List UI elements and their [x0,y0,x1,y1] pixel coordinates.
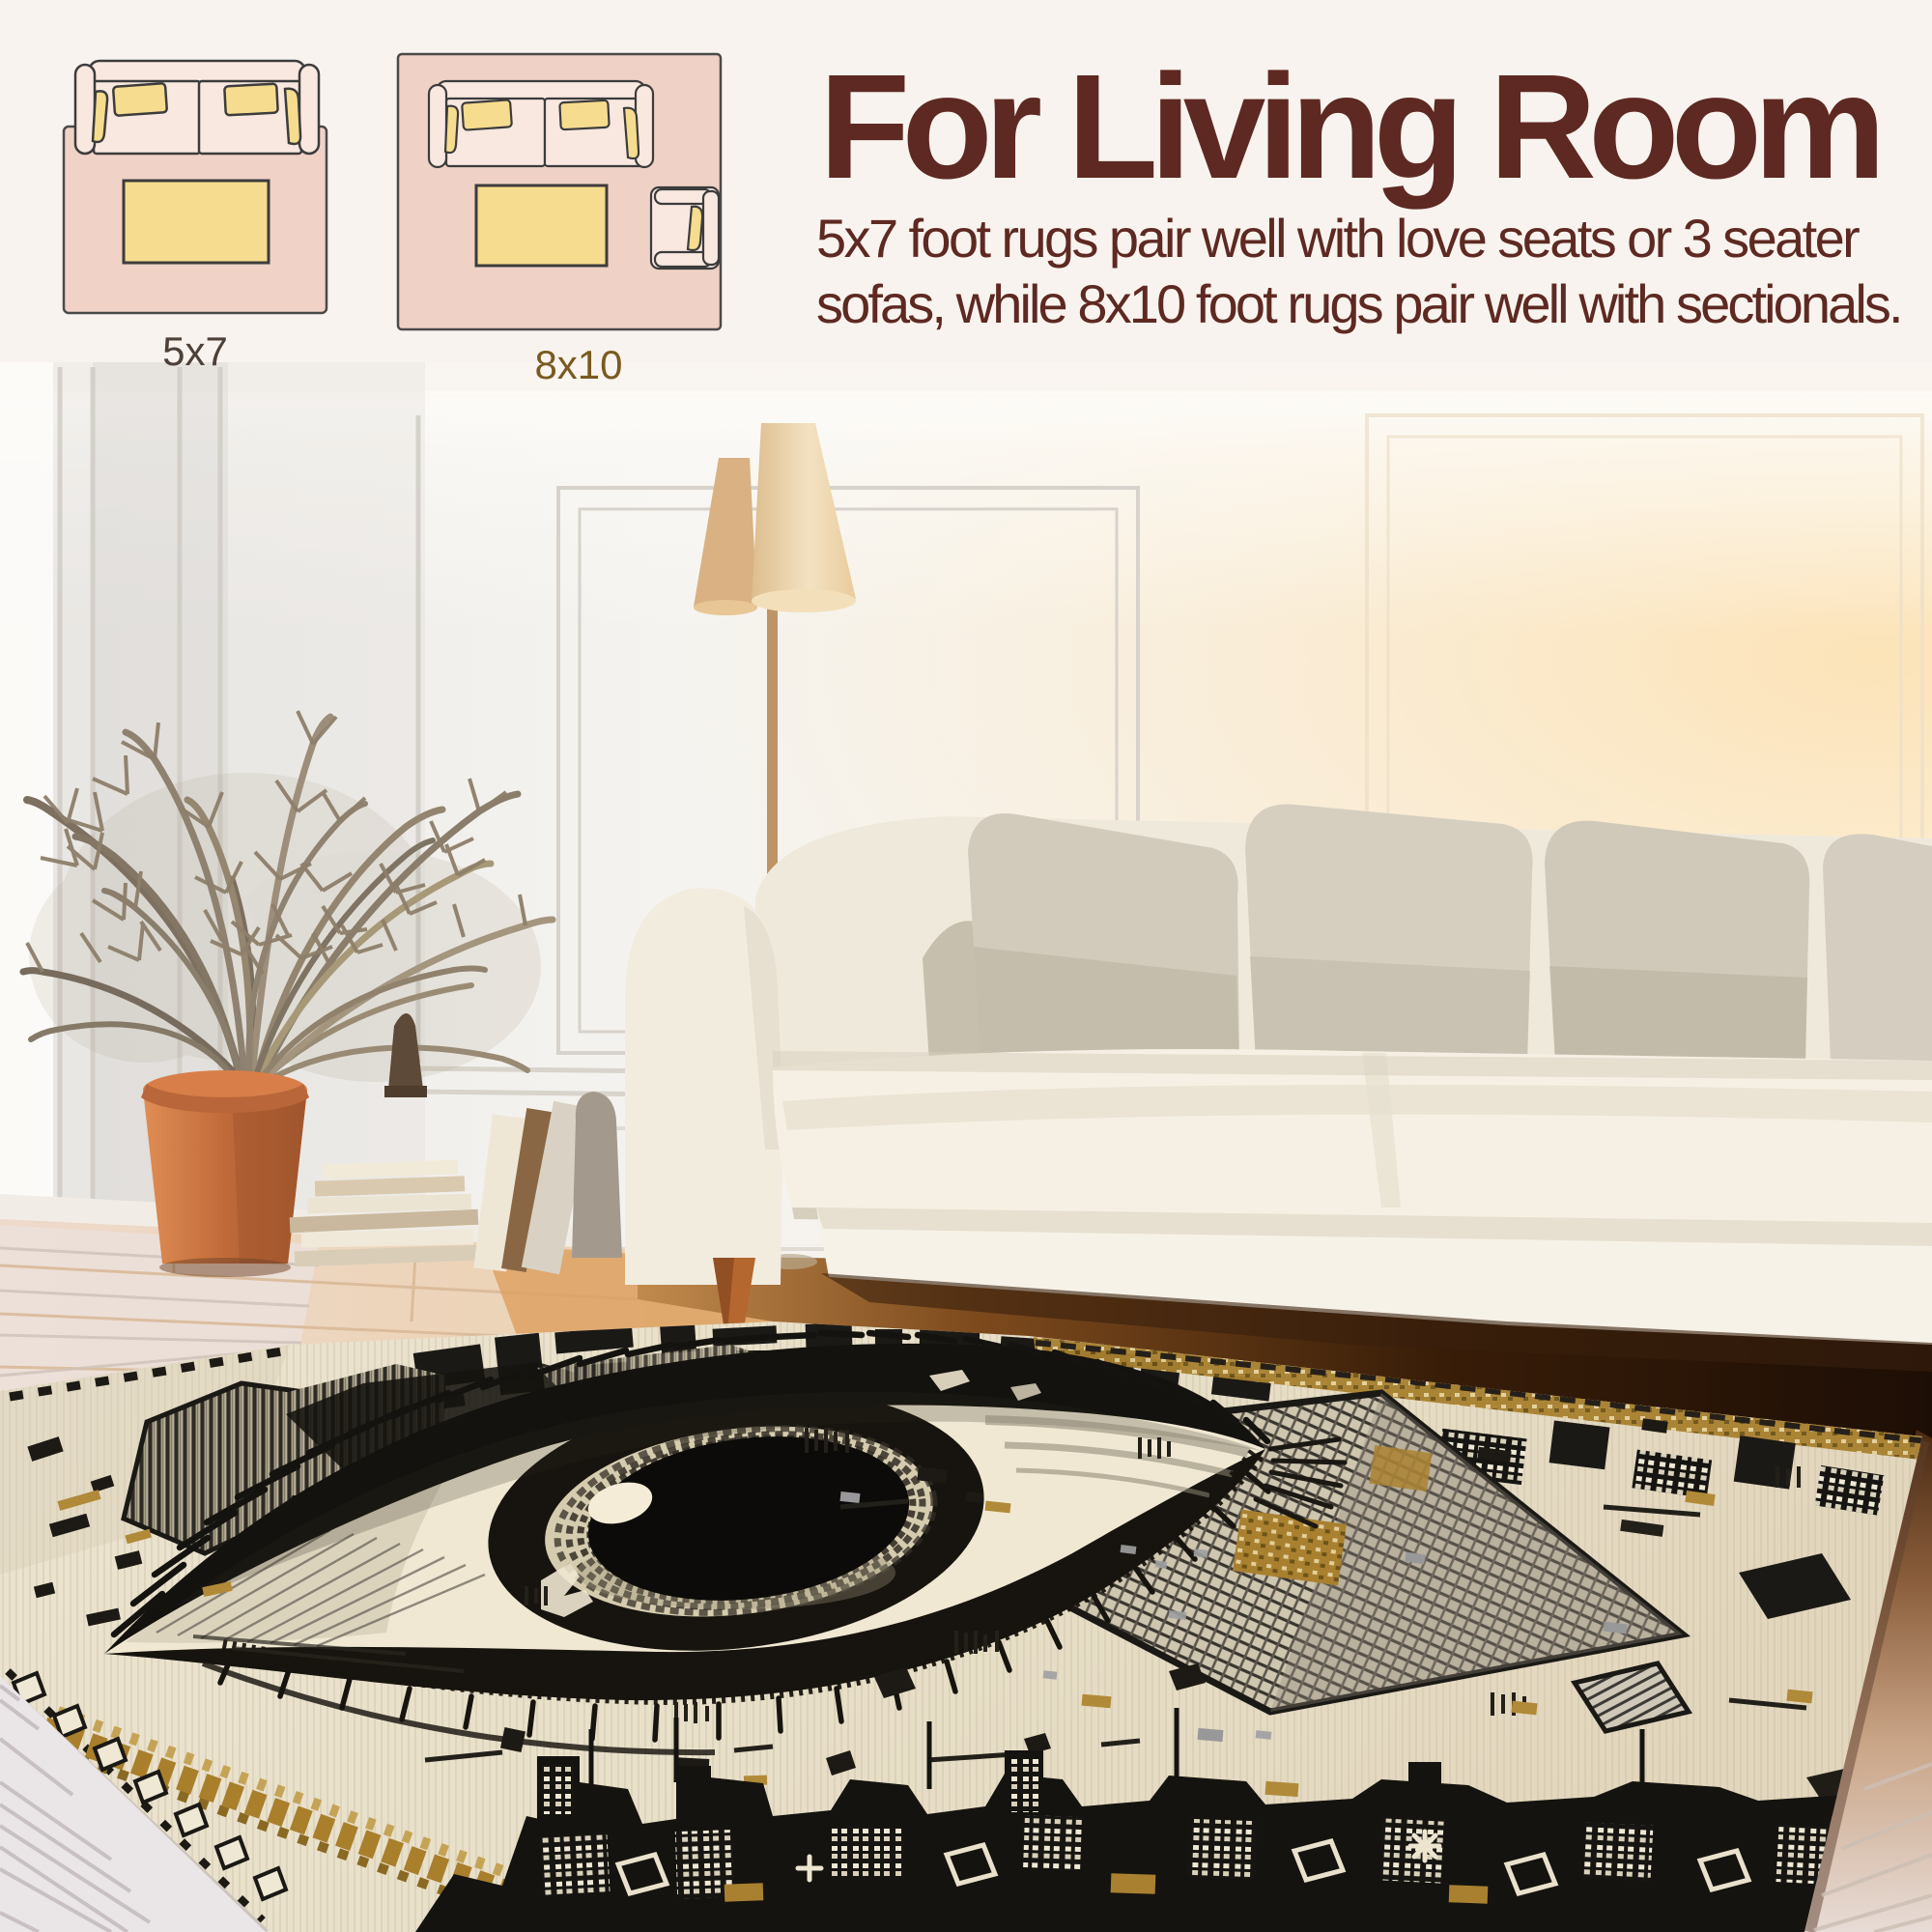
svg-text:5x7: 5x7 [162,328,228,374]
svg-text:For Living Room: For Living Room [819,43,1878,210]
svg-text:sofas, while 8x10 foot rugs pa: sofas, while 8x10 foot rugs pair well wi… [816,273,1901,334]
svg-text:5x7 foot rugs pair well with l: 5x7 foot rugs pair well with love seats … [816,208,1860,269]
svg-text:8x10: 8x10 [534,342,622,387]
